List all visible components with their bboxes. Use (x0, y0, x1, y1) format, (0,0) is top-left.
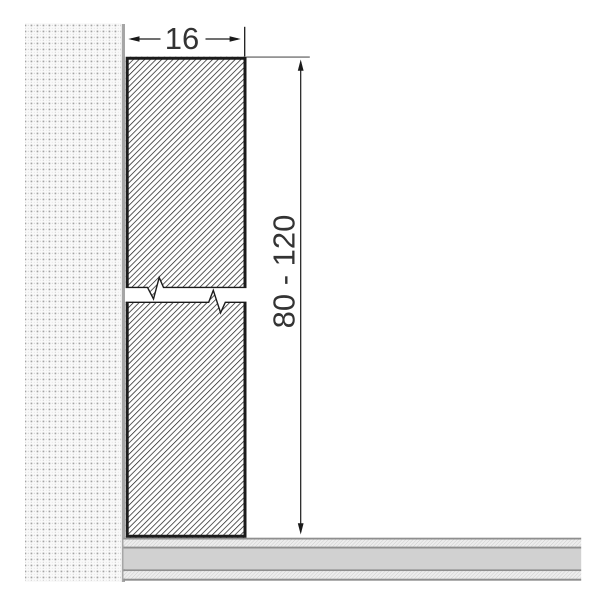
svg-text:80 - 120: 80 - 120 (267, 215, 302, 329)
svg-text:16: 16 (165, 21, 199, 56)
